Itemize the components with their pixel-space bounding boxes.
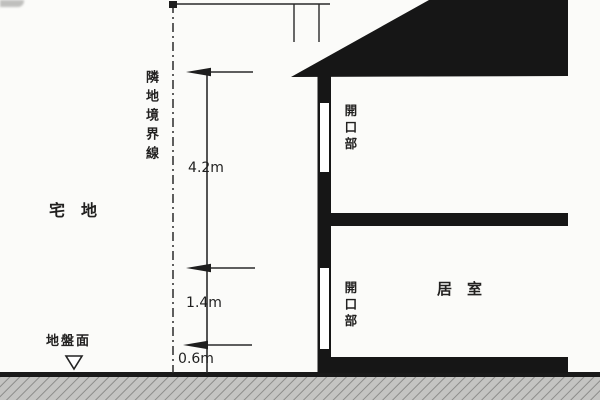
upper-window-opening	[320, 103, 329, 172]
lower-opening-label: 開口部	[342, 281, 356, 331]
window-head-level-arrow	[186, 264, 211, 272]
earth-hatch	[0, 377, 600, 400]
dimension-label-top: 4.2m	[179, 160, 233, 176]
window-sill-level-arrow	[183, 341, 208, 349]
boundary-line-label: 隣地境界線	[142, 70, 157, 165]
intermediate-floor-slab	[331, 213, 568, 226]
lower-window-opening	[320, 268, 329, 349]
scan-artifact	[0, 0, 24, 7]
dimension-label-bottom: 0.6m	[171, 351, 221, 367]
dimension-label-middle: 1.4m	[179, 295, 229, 311]
roof	[291, 0, 568, 77]
building-section-diagram: 隣地境界線 宅 地 地盤面 開口部 開口部 居 室 4.2m 1.4m 0.6m	[0, 0, 600, 400]
upper-opening-label: 開口部	[342, 104, 356, 154]
room-label: 居 室	[437, 281, 482, 298]
ground-level-marker-icon	[66, 356, 82, 369]
top-dimension-tick	[169, 1, 177, 8]
ground-surface-label: 地盤面	[46, 335, 91, 350]
site-label: 宅 地	[49, 202, 97, 220]
eave-level-arrow	[186, 68, 211, 76]
ground-floor-slab	[331, 357, 568, 373]
